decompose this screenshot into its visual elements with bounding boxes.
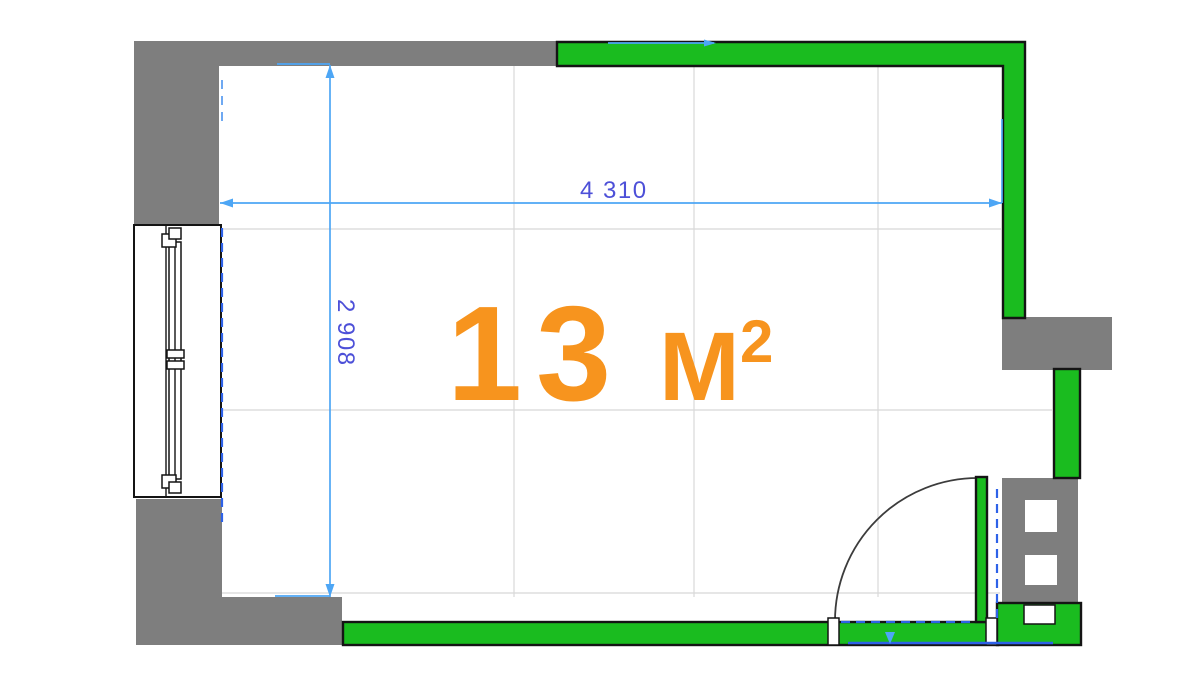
wall-bottom-left-gray	[136, 499, 342, 645]
area-unit: м	[659, 312, 740, 421]
dimension-arrow-bottom	[326, 584, 335, 597]
floor-plan-canvas: 4 310 2 908 13 м 2	[0, 0, 1200, 677]
window-frame-detail	[169, 228, 181, 239]
wall-right-middle-gray	[1002, 317, 1112, 370]
door-jamb-right	[986, 618, 997, 645]
door-leaf	[976, 477, 987, 622]
window	[134, 225, 221, 497]
area-label: 13 м 2	[447, 278, 773, 429]
area-unit-superscript: 2	[740, 308, 773, 375]
dimension-arrow-right	[989, 199, 1002, 208]
wall-top-left-gray	[134, 41, 556, 225]
area-value: 13	[447, 278, 625, 429]
window-mullion	[167, 350, 184, 358]
window-mullion	[167, 361, 184, 369]
floor-plan: 4 310 2 908 13 м 2	[0, 0, 1200, 677]
door-swing-arc	[835, 478, 978, 621]
window-frame-detail	[169, 482, 181, 493]
shaft-opening	[1025, 555, 1057, 585]
wall-niche-opening	[1024, 605, 1055, 624]
wall-right-lower-green	[1054, 369, 1080, 478]
dimension-arrow-top	[326, 65, 335, 78]
dimension-width-label: 4 310	[580, 177, 648, 204]
dimension-lines: 4 310 2 908	[220, 40, 1053, 645]
door	[828, 477, 997, 645]
door-jamb-left	[828, 618, 839, 645]
shaft-opening	[1025, 500, 1057, 532]
dimension-height-label: 2 908	[332, 299, 359, 367]
wall-bottom-green	[343, 622, 998, 645]
dimension-arrow-left	[220, 199, 233, 208]
